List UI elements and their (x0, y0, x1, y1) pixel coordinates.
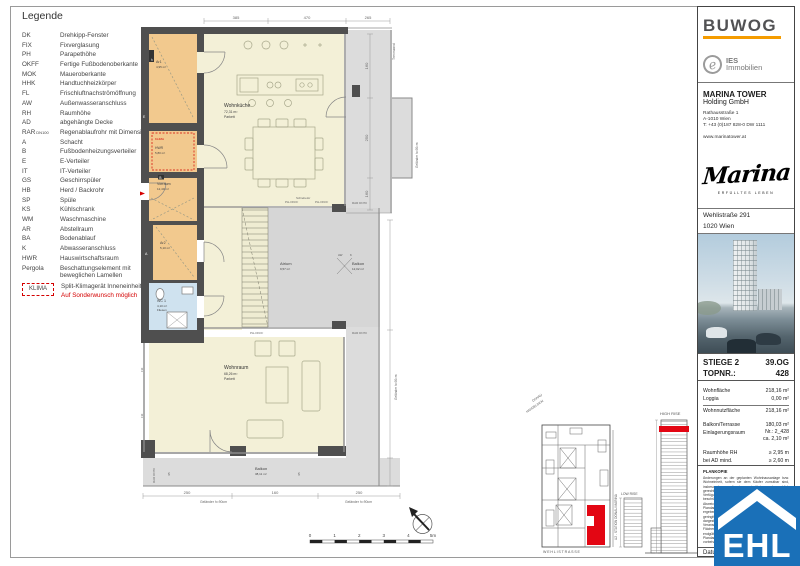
marina-logo: Marina ERFÜLLTES LEBEN (698, 155, 794, 209)
svg-text:RAR DN70: RAR DN70 (152, 468, 156, 483)
svg-text:385: 385 (233, 15, 240, 20)
legend-row: ADabgehängte Decke (22, 119, 154, 129)
svg-text:Geländer h=90cm: Geländer h=90cm (200, 500, 227, 504)
klima-note: Auf Sonderwunsch möglich (61, 292, 142, 299)
svg-text:FIX: FIX (140, 414, 144, 418)
svg-text:5m: 5m (430, 533, 437, 538)
table-row: EinlagerungsraumNr.: 2_428ca. 2,10 m² (703, 429, 789, 443)
legend-row: FLFrischluftnachströmöffnung (22, 90, 154, 100)
svg-text:Geländer h=90cm: Geländer h=90cm (394, 374, 398, 400)
svg-text:K: K (350, 253, 352, 257)
svg-text:95: 95 (297, 472, 301, 476)
legend-row: AWAußenwasseranschluss (22, 100, 154, 110)
room-wohnraum (149, 337, 344, 452)
svg-text:3: 3 (383, 533, 386, 538)
svg-text:12,40 m²: 12,40 m² (157, 187, 169, 191)
svg-text:Parkett: Parkett (224, 115, 235, 119)
corridor (204, 206, 242, 330)
topnr-value: 428 (776, 368, 789, 379)
svg-text:HWR: HWR (155, 146, 164, 150)
legend-row: PHParapethöhe (22, 51, 154, 61)
project-address: Wehlistraße 291 1020 Wien (698, 209, 794, 234)
stiege-label: STIEGE 2 (703, 357, 739, 368)
north-compass-icon (409, 507, 432, 534)
svg-text:Ar2: Ar2 (160, 241, 166, 245)
legend-row: SPSpüle (22, 197, 154, 207)
klima-dashed-box: KLIMA (22, 283, 54, 296)
svg-text:PH-OKFF: PH-OKFF (315, 200, 328, 204)
floor-plan: Wohnküche 72,31 m² Parkett Wohnraum 68,2… (140, 6, 698, 558)
legend-row: ITIT-Verteiler (22, 168, 154, 178)
svg-text:72,31 m²: 72,31 m² (224, 110, 238, 114)
svg-text:KLIMA: KLIMA (155, 137, 164, 141)
svg-text:4,95 m²: 4,95 m² (156, 65, 166, 69)
svg-text:RAR DN70: RAR DN70 (352, 331, 367, 335)
svg-text:95: 95 (167, 472, 171, 476)
svg-text:AW: AW (338, 253, 343, 257)
legend-row: GSGeschirrspüler (22, 177, 154, 187)
website-link: www.marinatower.at (703, 135, 789, 140)
floor-label: 39.OG (765, 357, 789, 368)
legend: Legende DKDrehkipp-Fenster FIXFixverglas… (22, 10, 154, 299)
svg-text:PH-OKFF: PH-OKFF (250, 331, 263, 335)
company-name: MARINA TOWER (703, 90, 789, 99)
tower-render (733, 240, 757, 311)
legend-row: PergolaBeschattungselement mit beweglich… (22, 265, 154, 280)
divider (703, 405, 789, 406)
legend-row: MOKMaueroberkante (22, 71, 154, 81)
title-block-sidebar: BUWOG e IES Immobilien MARINA TOWER Hold… (697, 6, 795, 557)
low-rise-elevation: LOW RISE (619, 492, 642, 547)
legend-row: HHKHandtuchheizkörper (22, 80, 154, 90)
boat-render (756, 333, 781, 345)
svg-text:WC 1: WC 1 (157, 299, 166, 303)
svg-text:250: 250 (356, 490, 363, 495)
legend-row: ASchacht (22, 139, 154, 149)
svg-text:160: 160 (364, 62, 369, 69)
svg-text:WEHLISTRASSE: WEHLISTRASSE (543, 550, 581, 554)
room-ar1 (149, 34, 197, 123)
legend-row: KSKühlschrank (22, 206, 154, 216)
svg-text:Schiebetür: Schiebetür (296, 196, 310, 200)
svg-text:EHL: EHL (723, 527, 792, 564)
table-row: Balkon/Terrasse180,03 m² (703, 421, 789, 429)
boat-render (706, 327, 727, 338)
site-plan: WEHLISTRASSE U2 - STATION DONAU MARINA D… (525, 393, 618, 554)
table-row: bei AD mind.≥ 2,60 m (703, 457, 789, 465)
floor-plan-sheet: { "colors":{"red":"#e30613","orange_bar"… (0, 0, 800, 566)
svg-text:Geländer h=90cm: Geländer h=90cm (345, 500, 372, 504)
svg-text:FIX: FIX (140, 368, 144, 372)
legend-klima-row: KLIMA Split-Klimagerät InneneinheitAuf S… (22, 283, 154, 300)
unit-identification: STIEGE 2 39.OG TOPNR.: 428 (698, 353, 794, 381)
svg-text:Balkon: Balkon (255, 466, 267, 471)
svg-text:470: 470 (304, 15, 311, 20)
svg-text:Parkett: Parkett (224, 377, 235, 381)
dock-render (727, 339, 756, 353)
svg-text:160: 160 (364, 190, 369, 197)
svg-text:160: 160 (272, 490, 279, 495)
legend-row: OKFFFertige Fußbodenoberkante (22, 61, 154, 71)
table-row: Loggia0,00 m² (703, 395, 789, 403)
high-rise-floor-highlight (659, 426, 689, 432)
legend-row: BFußbodenheizungsverteiler (22, 148, 154, 158)
building-photo (698, 234, 794, 353)
svg-text:250: 250 (184, 490, 191, 495)
svg-text:68,26 m²: 68,26 m² (224, 372, 238, 376)
svg-text:0: 0 (309, 533, 312, 538)
legend-row: HWRHauswirtschaftsraum (22, 255, 154, 265)
svg-text:Balkon: Balkon (352, 261, 364, 266)
buwog-logo: BUWOG (698, 7, 794, 47)
legend-row: RARDN100Regenablaufrohr mit Dimension (22, 129, 154, 139)
legend-title: Legende (22, 10, 154, 22)
svg-text:LOW RISE: LOW RISE (621, 492, 638, 496)
ies-circle-icon: e (701, 53, 724, 76)
svg-text:9,57 m²: 9,57 m² (280, 267, 290, 271)
svg-text:5,10 m²: 5,10 m² (160, 246, 170, 250)
table-row: Raumhöhe RH≥ 2,95 m (703, 449, 789, 457)
svg-text:2: 2 (358, 533, 361, 538)
developer-contact: MARINA TOWER Holding GmbH Rathausstraße … (698, 83, 794, 155)
svg-text:265: 265 (365, 15, 372, 20)
ies-immobilien-logo: e IES Immobilien (698, 47, 794, 83)
svg-text:Ar1: Ar1 (156, 60, 162, 64)
legend-row: DKDrehkipp-Fenster (22, 32, 154, 42)
scale-bar: 0 1 2 3 4 5m (309, 533, 437, 543)
svg-text:U2 - STATION DONAU MARINA: U2 - STATION DONAU MARINA (614, 493, 618, 540)
high-rise-elevation: HIGH RISE (645, 411, 697, 553)
ehl-logo: EHL (714, 486, 800, 566)
svg-text:4: 4 (407, 533, 410, 538)
svg-text:Trennwand: Trennwand (392, 43, 396, 60)
svg-text:250: 250 (364, 134, 369, 141)
svg-text:PH-OKFF: PH-OKFF (285, 200, 298, 204)
legend-row: WMWaschmaschine (22, 216, 154, 226)
svg-text:Geländer h=90cm: Geländer h=90cm (415, 142, 419, 168)
topnr-label: TOPNR.: (703, 368, 736, 379)
trees-render (698, 301, 721, 315)
table-row: Wohnfläche218,16 m² (703, 387, 789, 395)
svg-text:12,02 m²: 12,02 m² (352, 267, 364, 271)
svg-text:1: 1 (333, 533, 336, 538)
buwog-orange-bar (703, 36, 781, 39)
svg-text:Fliesen: Fliesen (157, 308, 167, 312)
svg-text:RAR DN70: RAR DN70 (352, 201, 367, 205)
svg-text:IT: IT (150, 58, 154, 61)
svg-text:Atrium: Atrium (280, 261, 292, 266)
low-building-render (758, 289, 783, 310)
klima-desc: Split-Klimagerät Inneneinheit (61, 283, 142, 290)
svg-text:HIGH RISE: HIGH RISE (660, 411, 681, 416)
legend-row: BABodenablauf (22, 235, 154, 245)
legend-row: EE-Verteiler (22, 158, 154, 168)
svg-text:38,11 m²: 38,11 m² (255, 472, 267, 476)
svg-text:5,80 m²: 5,80 m² (155, 151, 165, 155)
area-table: Wohnfläche218,16 m² Loggia0,00 m² Wohnnu… (698, 381, 794, 465)
legend-row: RHRaumhöhe (22, 110, 154, 120)
svg-text:Wohnraum: Wohnraum (224, 365, 248, 371)
svg-text:Vorraum: Vorraum (157, 182, 171, 186)
legend-row: FIXFixverglasung (22, 42, 154, 52)
svg-text:Wohnküche: Wohnküche (224, 103, 251, 109)
marina-tagline: ERFÜLLTES LEBEN (703, 191, 789, 195)
legend-row: ARAbstellraum (22, 226, 154, 236)
table-row: Wohnnutzfläche218,16 m² (703, 407, 789, 415)
legend-row: KAbwasseranschluss (22, 245, 154, 255)
legend-row: HBHerd / Backrohr (22, 187, 154, 197)
